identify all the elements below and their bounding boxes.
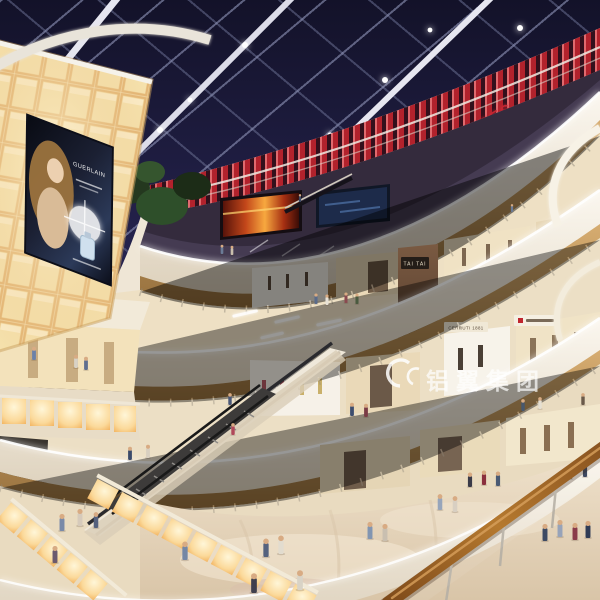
storefront-sign-red-logo [514, 315, 560, 326]
watermark-text: 铝翼集团 [426, 368, 546, 394]
atrium-scene: THEATRES [0, 0, 600, 600]
sign-tai-tai-upper: TAI TAI [403, 262, 426, 268]
mall-atrium-rendering: THEATRES [0, 0, 600, 600]
